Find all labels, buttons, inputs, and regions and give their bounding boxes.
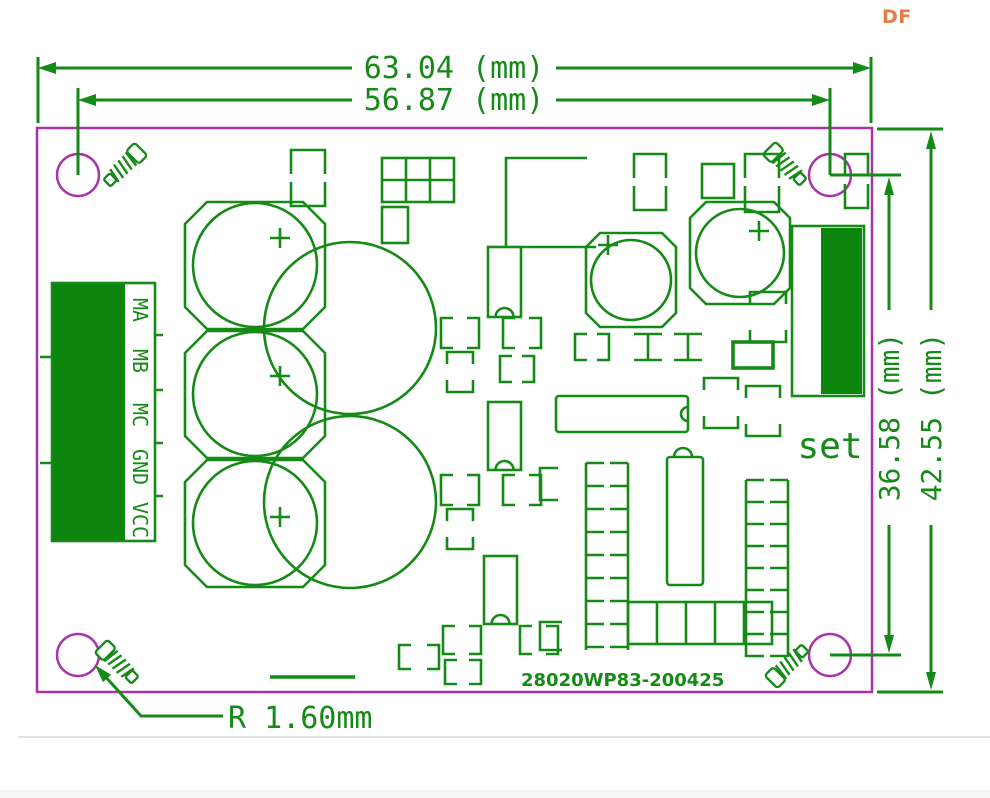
- pcb-dimension-drawing: DF: [0, 0, 990, 798]
- pin-label-mb: MB: [128, 349, 152, 373]
- pin-headers: [586, 463, 788, 657]
- pin-label-gnd: GND: [128, 449, 152, 485]
- screw-icon: [763, 142, 810, 189]
- large-capacitors: [185, 202, 436, 588]
- dim-label-width-outer: 63.04 (mm): [364, 51, 545, 86]
- dim-label-height-holes: 36.58 (mm): [873, 333, 906, 502]
- screw-icon: [101, 143, 148, 190]
- heatsink: [792, 226, 864, 396]
- pin-label-vcc: VCC: [128, 502, 152, 538]
- medium-capacitors: [586, 164, 790, 327]
- drawing-canvas: 63.04 (mm) 56.87 (mm) 36.58 (mm) 42.55 (…: [0, 0, 990, 798]
- dim-label-width-holes: 56.87 (mm): [364, 83, 545, 118]
- transistor-outlines: [484, 158, 596, 624]
- dim-label-height-outer: 42.55 (mm): [915, 333, 948, 502]
- screw-icons: [95, 142, 812, 689]
- terminal-block: MA MB MC GND VCC: [40, 283, 163, 541]
- part-number: 28020WP83-200425: [521, 670, 724, 691]
- pin-label-ma: MA: [128, 298, 152, 322]
- ic-outlines: [556, 396, 703, 585]
- dim-label-hole-radius: R 1.60mm: [228, 701, 373, 736]
- mounting-hole-bottom-left: [57, 634, 99, 676]
- pin-label-mc: MC: [128, 403, 152, 427]
- set-label: set: [797, 426, 862, 467]
